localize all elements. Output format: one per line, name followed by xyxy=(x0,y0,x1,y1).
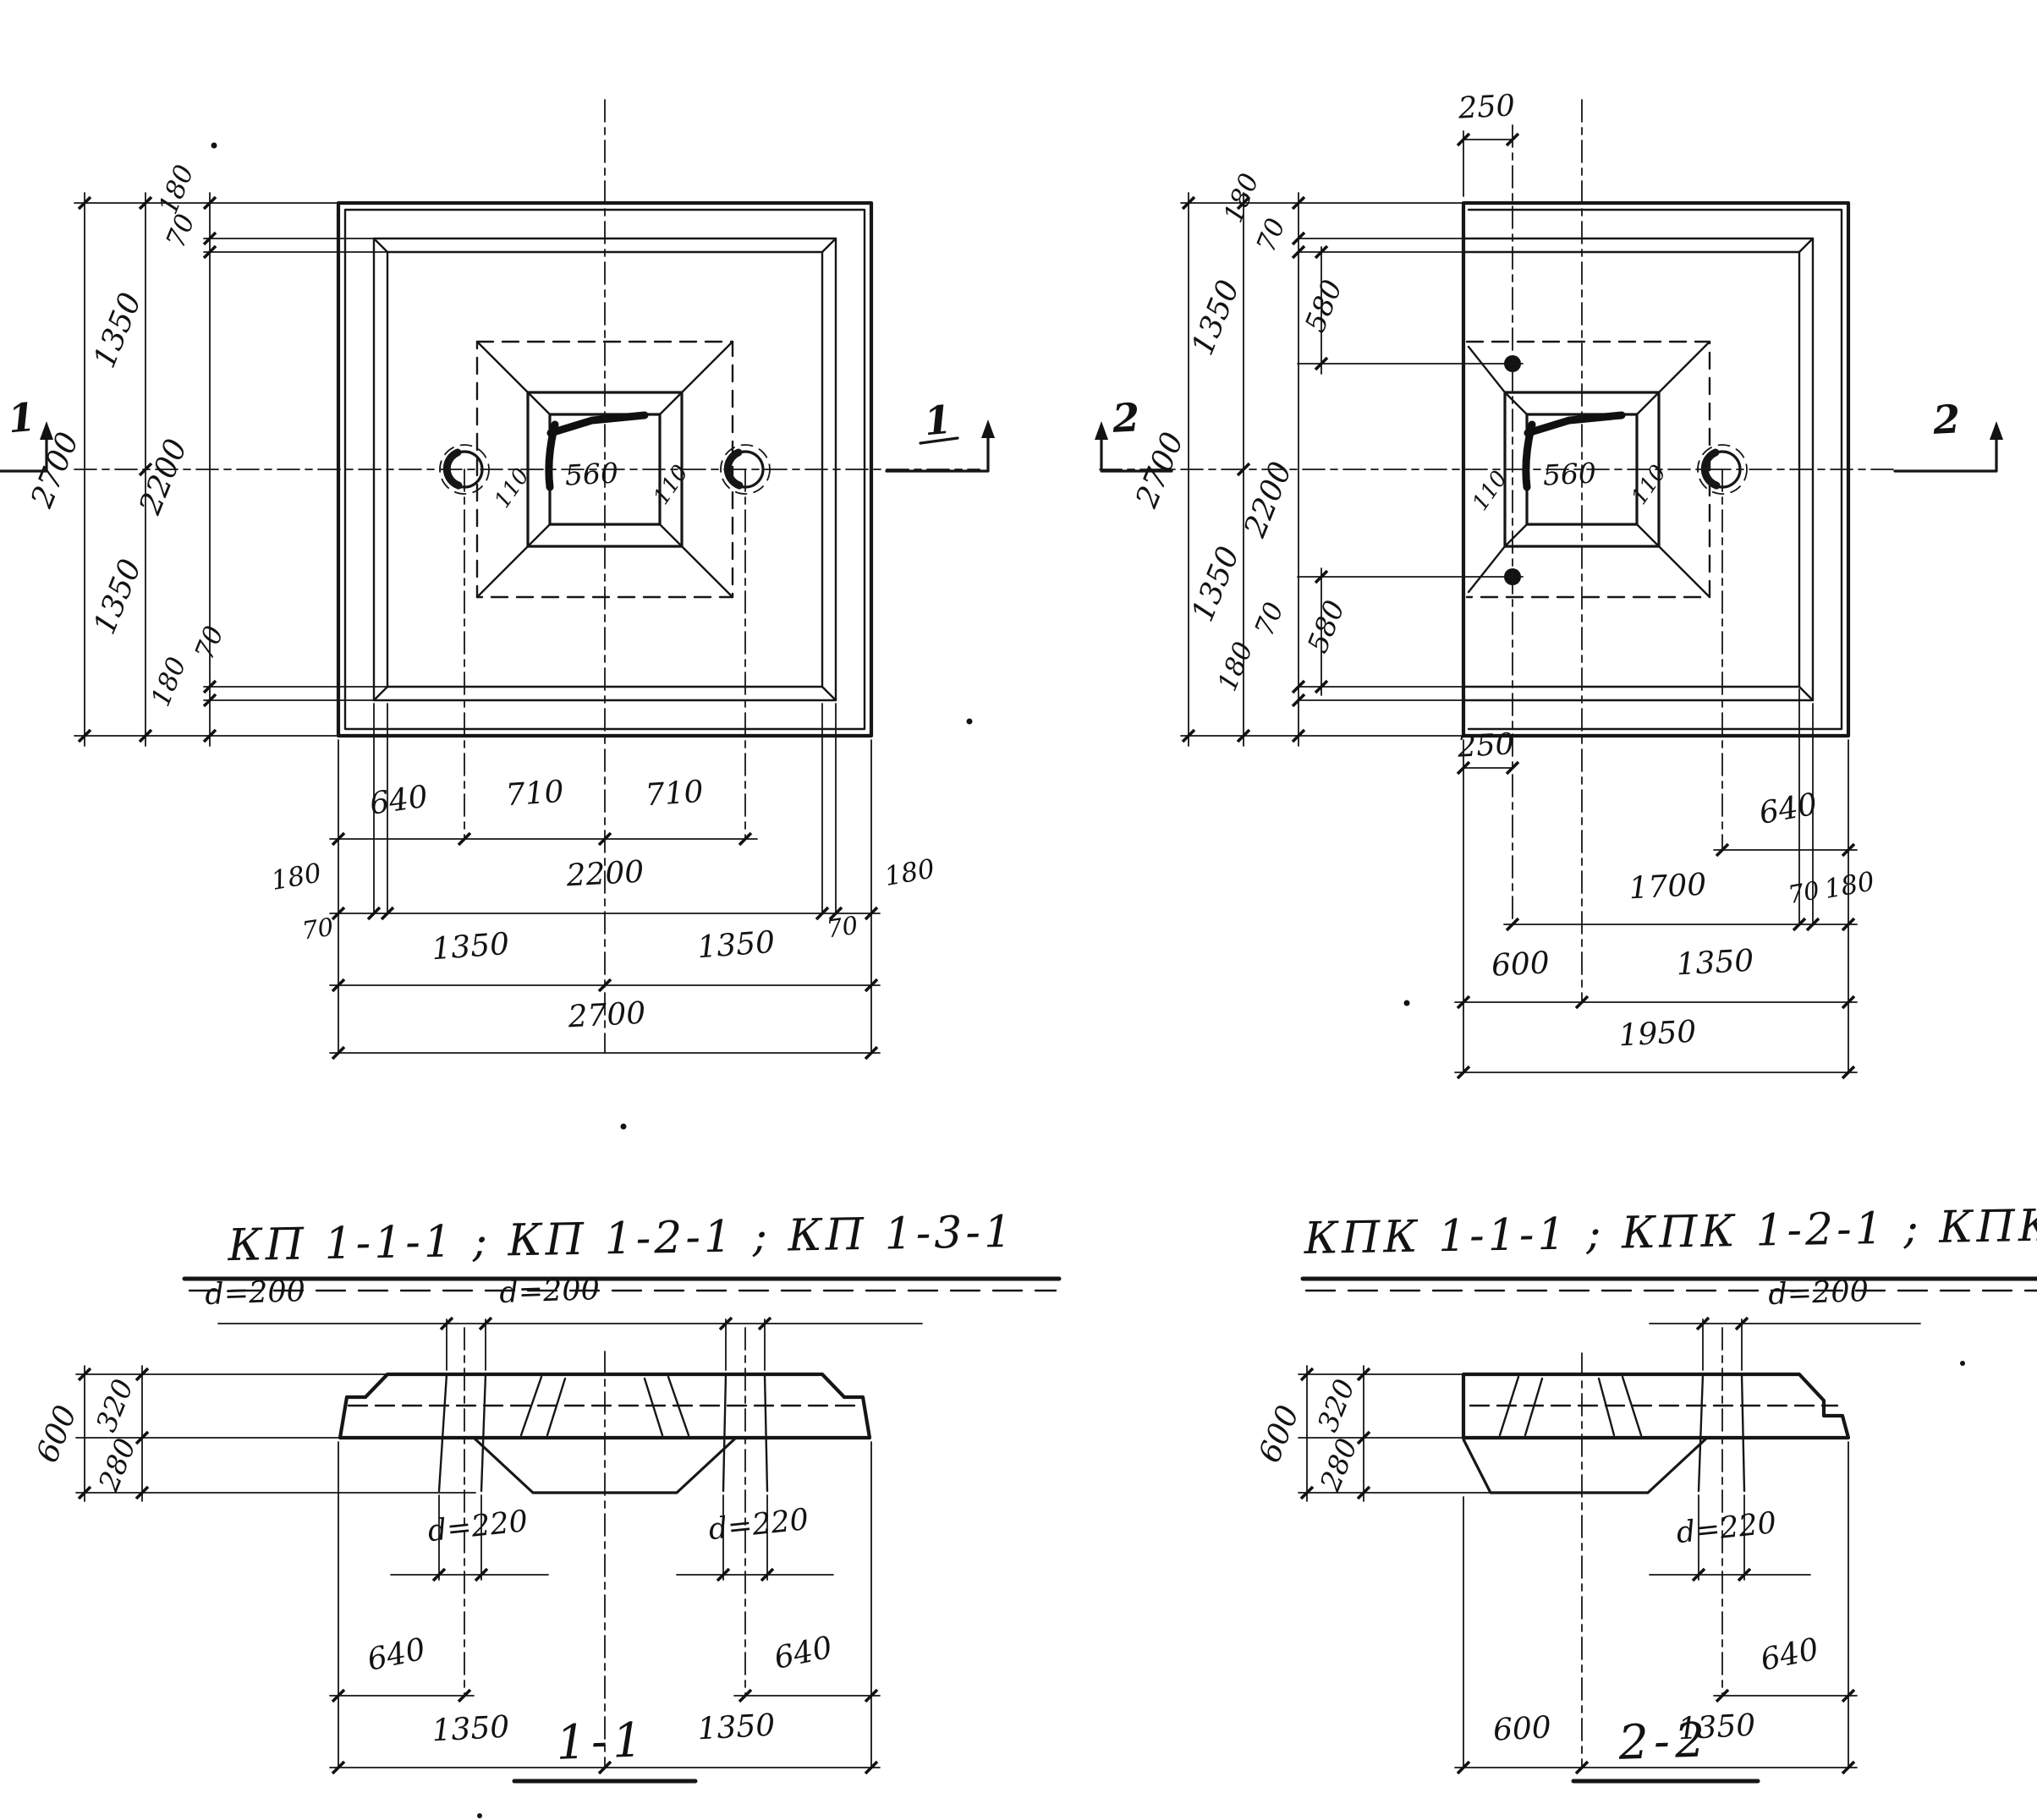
dim-label: 70 xyxy=(1249,598,1290,640)
blueprint-canvas: 2700 1350 1350 180 70 2200 70 180 560 11… xyxy=(0,0,2037,1820)
dim-label: 180 xyxy=(153,161,200,218)
kpk-cut-arrow-right xyxy=(1990,421,2003,440)
dim-label: 640 xyxy=(1758,1632,1822,1678)
socket-size-label: 560 xyxy=(1542,456,1597,491)
hole-dia-label: d=220 xyxy=(426,1505,530,1549)
dim-label: 320 xyxy=(1310,1374,1361,1436)
dim-label: 600 xyxy=(1492,1710,1552,1748)
s1-ticks xyxy=(79,1318,877,1773)
dim-label: 1350 xyxy=(697,1708,777,1747)
section-marker-label: 1 xyxy=(922,397,953,445)
dim-label: 1350 xyxy=(1185,276,1246,360)
dim-label: 640 xyxy=(365,1632,429,1678)
hole-dia-label: d=220 xyxy=(1675,1506,1778,1550)
section-marker-label: 2 xyxy=(1111,394,1141,441)
s2-outline xyxy=(1463,1374,1848,1438)
hole-dia-label: d=200 xyxy=(499,1273,601,1310)
dim-label: 70 xyxy=(825,911,859,944)
dim-label: 1350 xyxy=(87,288,148,373)
dim-label: 1950 xyxy=(1618,1015,1698,1054)
dim-label: 70 xyxy=(161,210,201,252)
hole-dia-label: d=200 xyxy=(1768,1275,1870,1312)
dim-label: 250 xyxy=(1457,89,1516,125)
dim-label: 2200 xyxy=(133,435,195,520)
dim-label: 1700 xyxy=(1628,868,1708,907)
plan-view-kp: 2700 1350 1350 180 70 2200 70 180 560 11… xyxy=(0,100,1059,1291)
kp-cut-arrow-right xyxy=(981,419,995,438)
dim-label: 180 xyxy=(1218,169,1266,227)
dim-label: 640 xyxy=(368,780,431,822)
hole-dia-label: d=200 xyxy=(205,1275,306,1312)
kpk-title: КПК 1-1-1 ; КПК 1-2-1 ; КПК 1-3-1 xyxy=(1303,1198,2037,1264)
dim-label: 250 xyxy=(1456,727,1515,764)
dim-label: 2200 xyxy=(1238,458,1299,543)
kp-ink-blob2 xyxy=(549,425,555,487)
dim-label: 70 xyxy=(189,622,230,664)
dim-label: 580 xyxy=(1300,595,1351,657)
dim-label: 640 xyxy=(771,1631,836,1676)
s2-socket-funnel xyxy=(1463,1438,1707,1493)
s1-hole-walls xyxy=(439,1374,767,1491)
kp-ink-blob xyxy=(551,415,645,433)
s1-axes xyxy=(464,1328,745,1768)
dim-label: 180 xyxy=(1822,866,1877,905)
dim-label: 70 xyxy=(1251,214,1292,256)
s2-hole-walls xyxy=(1699,1374,1744,1491)
dim-label: 70 xyxy=(1786,875,1821,909)
dim-label: 1350 xyxy=(431,927,510,967)
dim-label: 1350 xyxy=(1676,944,1755,983)
dim-label: 600 xyxy=(30,1401,84,1467)
dim-label: 640 xyxy=(1757,787,1820,831)
kpk-cut-arrow-left xyxy=(1095,421,1108,440)
section-2-2: d=200 d=220 640 600 1350 600 320 280 2-2 xyxy=(1252,1275,1920,1781)
dim-label: 580 xyxy=(1298,275,1348,337)
wall-label: 110 xyxy=(649,460,694,509)
section-1-1: d=200 d=200 d=220 d=220 640 640 1350 135… xyxy=(30,1273,922,1781)
dim-label: 70 xyxy=(300,913,335,946)
socket-size-label: 560 xyxy=(564,456,619,491)
kpk-ink-blob xyxy=(1528,415,1622,433)
dim-label: 180 xyxy=(1212,638,1260,695)
s2-ticks xyxy=(1301,1318,1854,1773)
s1-hole-dim-lines xyxy=(218,1324,922,1575)
dim-label: 180 xyxy=(145,653,193,710)
dim-label: 320 xyxy=(89,1374,140,1436)
dim-label: 600 xyxy=(1252,1401,1306,1467)
dim-label: 180 xyxy=(882,853,937,892)
dim-label: 710 xyxy=(504,775,564,814)
section-marker-label: 2 xyxy=(1931,396,1962,443)
dim-label: 280 xyxy=(1313,1434,1364,1496)
dim-label: 710 xyxy=(644,775,704,814)
foundation-drawing: 2700 1350 1350 180 70 2200 70 180 560 11… xyxy=(0,0,2037,1820)
dim-label: 2700 xyxy=(567,996,647,1035)
section-title: 2-2 xyxy=(1617,1713,1710,1771)
dim-label: 280 xyxy=(91,1434,142,1496)
dim-label: 1350 xyxy=(87,555,148,639)
wall-label: 110 xyxy=(1627,460,1672,509)
section-marker-label: 1 xyxy=(6,394,37,442)
kp-title: КП 1-1-1 ; КП 1-2-1 ; КП 1-3-1 xyxy=(227,1207,1016,1271)
dim-label: 1350 xyxy=(1185,542,1246,627)
dim-label: 2200 xyxy=(565,855,645,894)
kpk-ink-blob2 xyxy=(1526,425,1532,487)
section-title: 1-1 xyxy=(555,1713,648,1771)
dim-label: 600 xyxy=(1491,946,1551,984)
dim-label: 1350 xyxy=(696,925,776,965)
dim-label: 1350 xyxy=(431,1710,511,1749)
plan-view-kpk: 2700 1350 1350 180 70 580 2200 580 70 18… xyxy=(1095,89,2037,1291)
dim-label: 180 xyxy=(269,858,324,896)
kpk-bottom-ticks xyxy=(1458,134,1854,1078)
